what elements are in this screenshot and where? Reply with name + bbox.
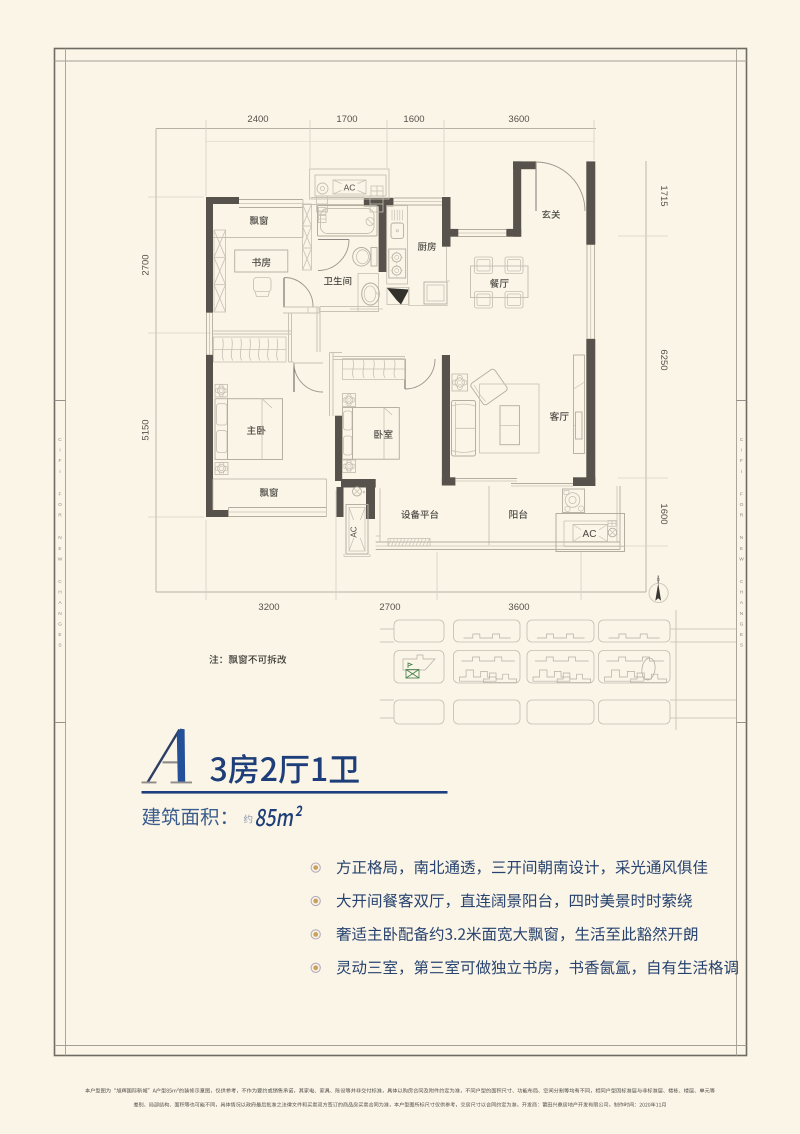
svg-text:3200: 3200 bbox=[258, 602, 279, 613]
svg-text:1715: 1715 bbox=[658, 185, 669, 206]
svg-text:C: C bbox=[740, 437, 744, 443]
svg-text:I: I bbox=[741, 448, 742, 454]
svg-text:R: R bbox=[740, 513, 744, 519]
svg-text:I: I bbox=[59, 469, 60, 475]
svg-text:S: S bbox=[740, 643, 743, 649]
svg-text:E: E bbox=[740, 546, 743, 552]
svg-text:1700: 1700 bbox=[336, 114, 357, 125]
svg-text:N: N bbox=[58, 535, 62, 541]
svg-text:O: O bbox=[740, 502, 744, 508]
svg-text:W: W bbox=[739, 556, 744, 562]
svg-text:5150: 5150 bbox=[141, 419, 152, 440]
svg-text:G: G bbox=[58, 621, 62, 627]
svg-text:I: I bbox=[59, 448, 60, 454]
svg-text:F: F bbox=[740, 491, 743, 497]
svg-text:E: E bbox=[740, 632, 743, 638]
svg-text:I: I bbox=[741, 469, 742, 475]
svg-text:F: F bbox=[740, 458, 743, 464]
svg-text:C: C bbox=[740, 579, 744, 585]
svg-text:N: N bbox=[740, 611, 744, 617]
svg-text:N: N bbox=[58, 611, 62, 617]
svg-text:×: × bbox=[363, 490, 366, 496]
svg-text:E: E bbox=[58, 632, 61, 638]
svg-text:2700: 2700 bbox=[379, 602, 400, 613]
svg-text:1600: 1600 bbox=[403, 114, 424, 125]
svg-text:2700: 2700 bbox=[141, 254, 152, 275]
svg-text:H: H bbox=[740, 590, 744, 596]
svg-text:2400: 2400 bbox=[247, 114, 268, 125]
svg-text:AC: AC bbox=[583, 529, 597, 540]
svg-text:E: E bbox=[58, 546, 61, 552]
svg-text:1600: 1600 bbox=[658, 503, 669, 524]
svg-text:C: C bbox=[58, 579, 62, 585]
svg-text:G: G bbox=[740, 621, 744, 627]
svg-text:W: W bbox=[58, 556, 63, 562]
svg-text:R: R bbox=[58, 513, 62, 519]
svg-text:F: F bbox=[59, 491, 62, 497]
svg-text:F: F bbox=[59, 458, 62, 464]
svg-text:3600: 3600 bbox=[508, 114, 529, 125]
svg-text:AC: AC bbox=[350, 526, 359, 537]
svg-text:AC: AC bbox=[344, 183, 356, 193]
svg-text:6250: 6250 bbox=[658, 349, 669, 370]
svg-text:N: N bbox=[740, 535, 744, 541]
svg-text:3600: 3600 bbox=[508, 602, 529, 613]
svg-text:O: O bbox=[58, 502, 62, 508]
svg-text:N: N bbox=[657, 577, 660, 582]
svg-text:H: H bbox=[58, 590, 62, 596]
svg-text:C: C bbox=[58, 437, 62, 443]
svg-text:S: S bbox=[58, 643, 61, 649]
